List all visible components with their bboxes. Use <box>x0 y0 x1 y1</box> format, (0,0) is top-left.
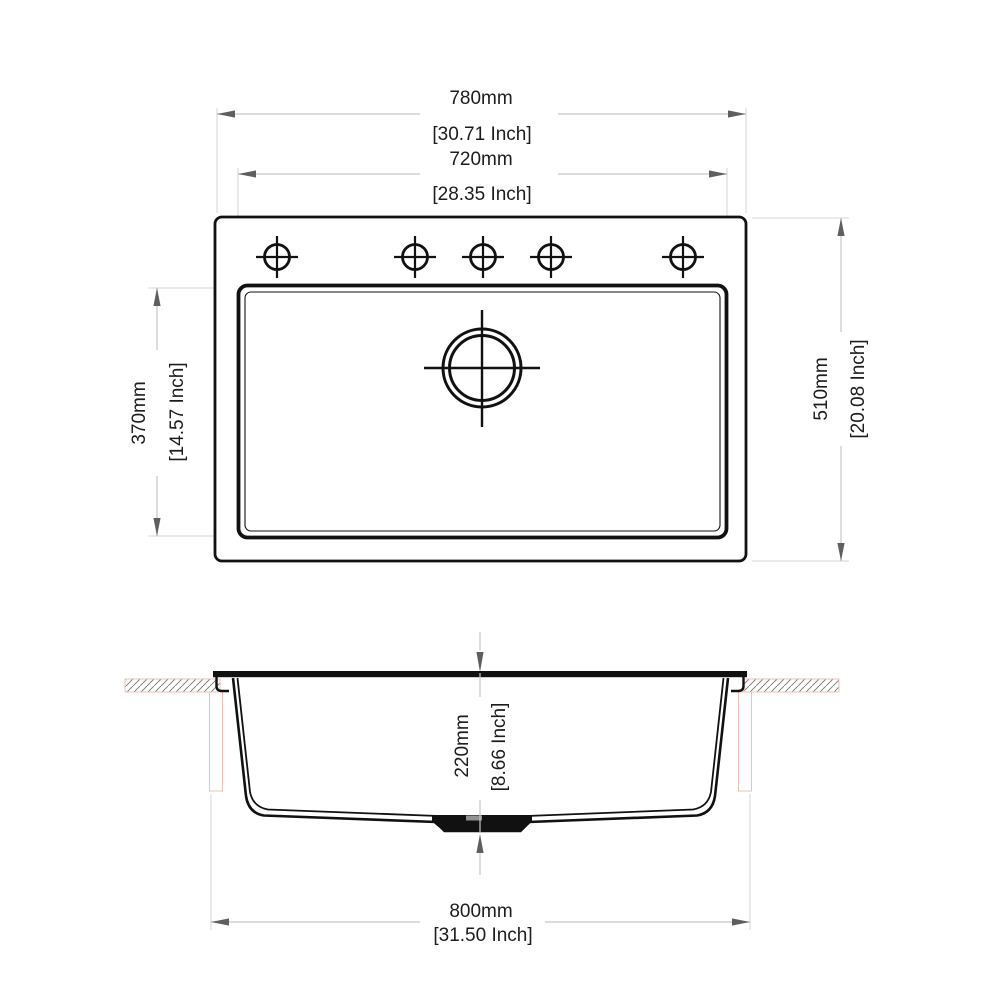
dim-bowl-height-mm: 220mm <box>452 714 473 777</box>
dim-basin-depth-inch: [14.57 Inch] <box>167 362 188 461</box>
cabinet-guide-left <box>210 692 223 791</box>
dim-bowl-height-inch: [8.66 Inch] <box>489 703 510 792</box>
plan-view: 780mm [30.71 Inch] 720mm [28.35 Inch] 37… <box>129 88 869 561</box>
dim-bottom-width-inch: [31.50 Inch] <box>433 925 532 946</box>
drawing-canvas: 780mm [30.71 Inch] 720mm [28.35 Inch] 37… <box>0 0 1000 1000</box>
dim-overall-depth-mm: 510mm <box>811 357 832 420</box>
section-view: 220mm [8.66 Inch] 800mm [31.50 Inch] <box>125 632 839 946</box>
dim-overall-width-mm: 780mm <box>449 88 512 109</box>
countertop-hatch-right <box>744 679 839 692</box>
sink-technical-drawing: 780mm [30.71 Inch] 720mm [28.35 Inch] 37… <box>0 0 1000 1000</box>
countertop-hatch-left <box>125 679 220 692</box>
dim-overall-depth-inch: [20.08 Inch] <box>848 339 869 438</box>
dim-bottom-width-mm: 800mm <box>449 901 512 922</box>
cabinet-guide-right <box>739 692 752 791</box>
dim-overall-width-inch: [30.71 Inch] <box>432 124 531 145</box>
dim-basin-depth-mm: 370mm <box>129 381 150 444</box>
dim-basin-width-mm: 720mm <box>449 149 512 170</box>
dim-basin-width-inch: [28.35 Inch] <box>432 184 531 205</box>
rim-lip-right <box>731 677 744 691</box>
